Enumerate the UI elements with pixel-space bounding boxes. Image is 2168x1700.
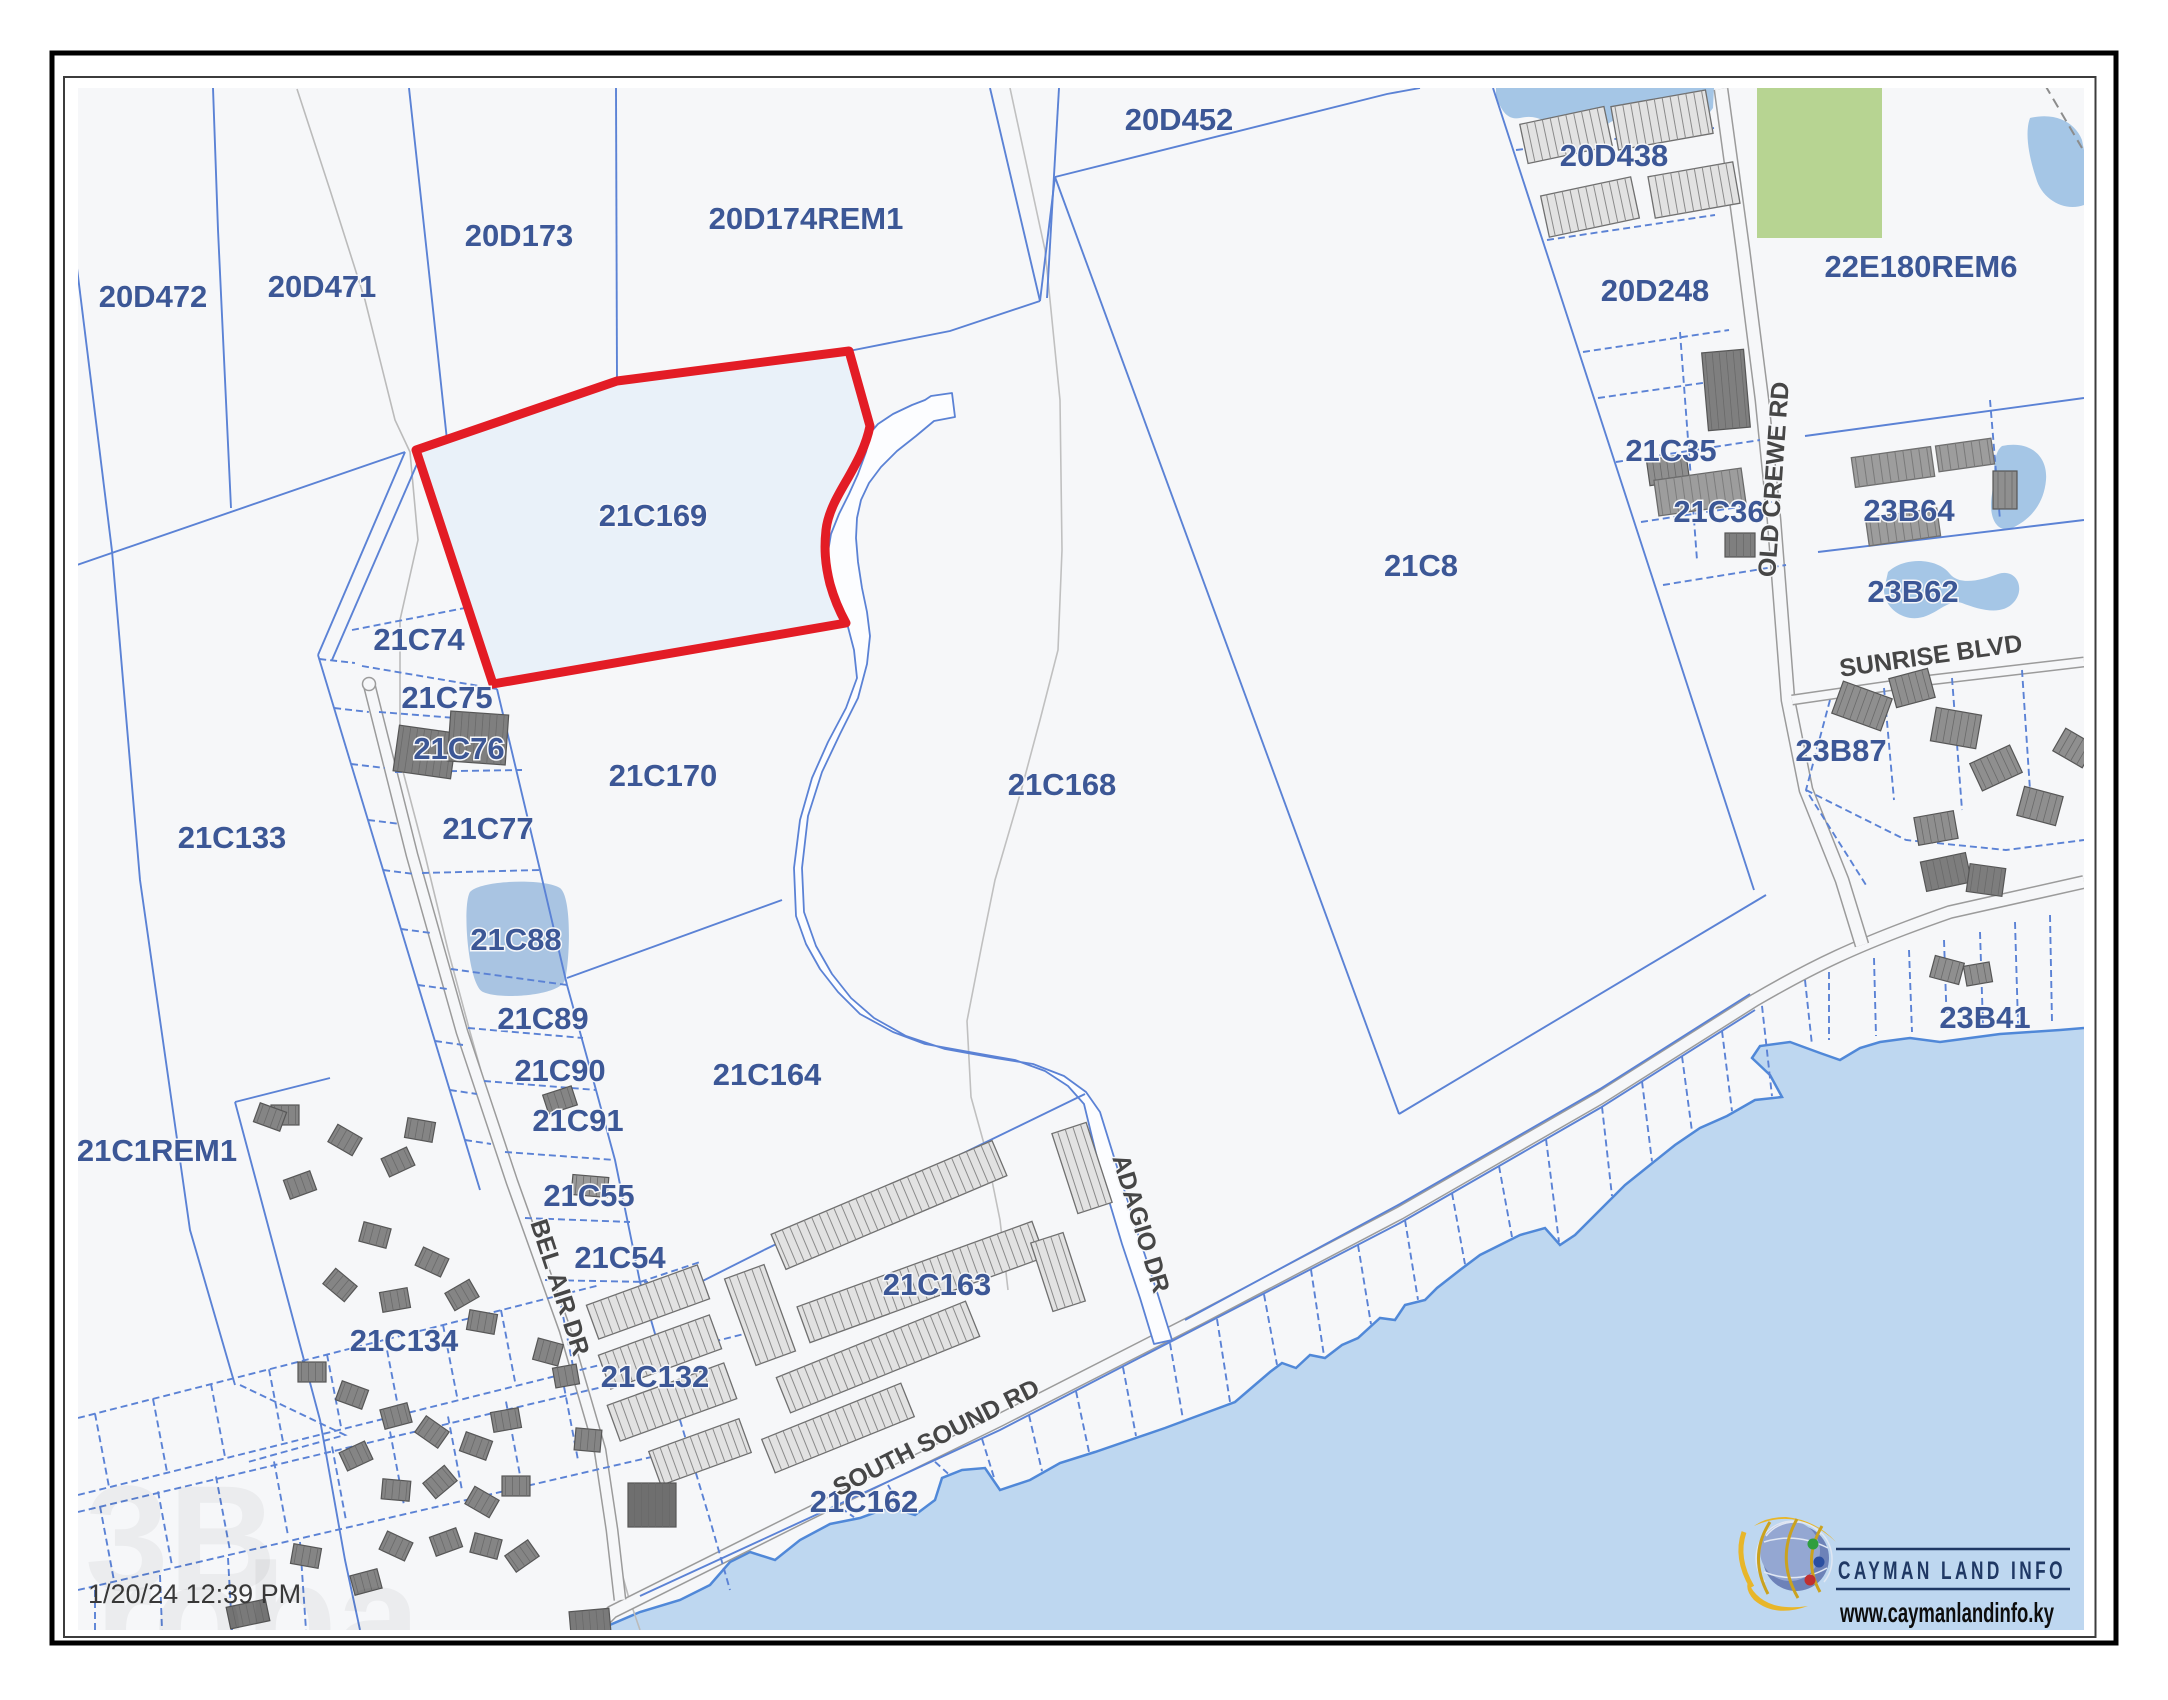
svg-text:CAYMAN LAND INFO: CAYMAN LAND INFO — [1838, 1557, 2066, 1585]
svg-text:21C134: 21C134 — [350, 1323, 459, 1358]
svg-text:www.caymanlandinfo.ky: www.caymanlandinfo.ky — [1839, 1597, 2054, 1628]
svg-text:21C88: 21C88 — [470, 922, 561, 957]
svg-text:20D472: 20D472 — [99, 279, 208, 314]
svg-text:21C132: 21C132 — [601, 1359, 710, 1394]
svg-text:21C133: 21C133 — [178, 820, 287, 855]
svg-text:21C164: 21C164 — [713, 1057, 822, 1092]
svg-text:21C77: 21C77 — [442, 811, 533, 846]
svg-text:21C89: 21C89 — [497, 1001, 588, 1036]
svg-text:21C8: 21C8 — [1384, 548, 1458, 583]
svg-text:20D174REM1: 20D174REM1 — [709, 201, 904, 236]
svg-text:22E180REM6: 22E180REM6 — [1824, 249, 2017, 284]
svg-text:21C1REM1: 21C1REM1 — [77, 1133, 237, 1168]
svg-text:23B64: 23B64 — [1863, 493, 1955, 528]
svg-text:21C91: 21C91 — [532, 1103, 623, 1138]
svg-text:21C35: 21C35 — [1625, 433, 1716, 468]
svg-text:21C54: 21C54 — [574, 1240, 666, 1275]
svg-text:21C75: 21C75 — [401, 680, 492, 715]
svg-text:21C170: 21C170 — [609, 758, 718, 793]
svg-text:21C55: 21C55 — [543, 1178, 634, 1213]
svg-text:23B62: 23B62 — [1867, 574, 1958, 609]
svg-text:21C163: 21C163 — [883, 1267, 992, 1302]
svg-text:20D471: 20D471 — [268, 269, 377, 304]
svg-text:20D248: 20D248 — [1601, 273, 1710, 308]
svg-text:21C168: 21C168 — [1008, 767, 1117, 802]
svg-text:21C36: 21C36 — [1673, 494, 1764, 529]
svg-text:20D173: 20D173 — [465, 218, 574, 253]
svg-text:20D438: 20D438 — [1560, 138, 1669, 173]
svg-text:21C74: 21C74 — [373, 622, 465, 657]
svg-text:21C76: 21C76 — [413, 731, 504, 766]
svg-text:23B41: 23B41 — [1939, 1000, 2030, 1035]
svg-text:20D452: 20D452 — [1125, 102, 1234, 137]
svg-text:23B87: 23B87 — [1795, 733, 1886, 768]
svg-text:21C169: 21C169 — [599, 498, 708, 533]
svg-text:21C90: 21C90 — [514, 1053, 605, 1088]
